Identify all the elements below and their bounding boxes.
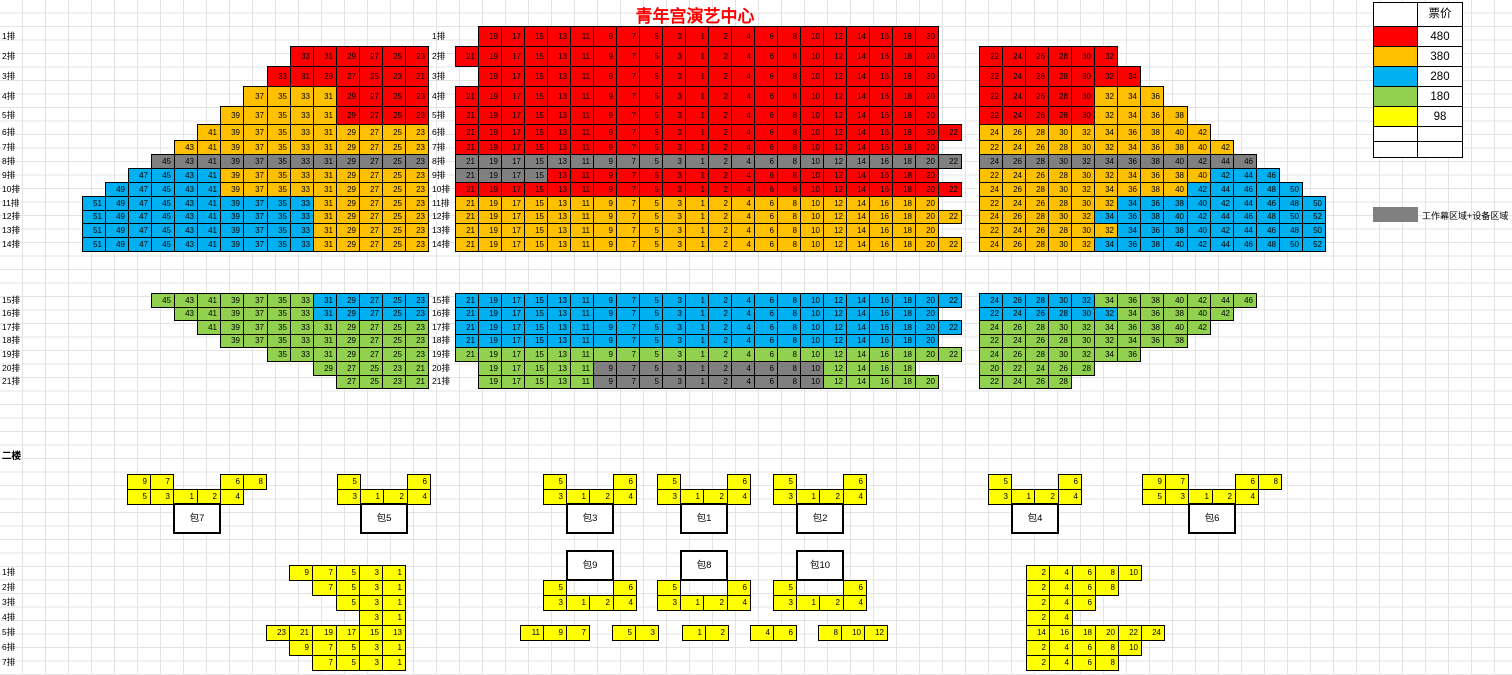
- seat-cell[interactable]: 31: [313, 154, 337, 169]
- seat-cell[interactable]: 18: [1072, 625, 1096, 641]
- seat-cell[interactable]: 3: [662, 196, 686, 211]
- seat-cell[interactable]: 36: [1140, 106, 1164, 125]
- seat-cell[interactable]: 11: [570, 210, 594, 224]
- seat-cell[interactable]: 23: [405, 293, 429, 308]
- seat-cell[interactable]: 17: [501, 307, 525, 321]
- seat-cell[interactable]: 33: [290, 86, 314, 107]
- seat-cell[interactable]: 7: [616, 210, 640, 224]
- seat-cell[interactable]: 19: [478, 124, 502, 141]
- seat-cell[interactable]: 35: [267, 196, 291, 211]
- seat-cell[interactable]: 41: [197, 154, 221, 169]
- seat-cell[interactable]: 3: [662, 375, 686, 389]
- seat-cell[interactable]: 42: [1210, 196, 1234, 211]
- seat-cell[interactable]: 14: [846, 154, 870, 169]
- seat-cell[interactable]: 5: [639, 223, 663, 238]
- seat-cell[interactable]: 48: [1256, 182, 1280, 197]
- seat-cell[interactable]: 27: [359, 320, 383, 335]
- seat-cell[interactable]: 13: [547, 375, 571, 389]
- seat-cell[interactable]: 2: [708, 196, 732, 211]
- seat-cell[interactable]: 47: [128, 223, 152, 238]
- seat-cell[interactable]: 11: [570, 347, 594, 362]
- seat-cell[interactable]: 2: [708, 375, 732, 389]
- seat-cell[interactable]: 18: [892, 140, 916, 155]
- seat-cell[interactable]: 9: [593, 26, 617, 47]
- seat-cell[interactable]: 8: [777, 106, 801, 125]
- seat-cell[interactable]: 38: [1140, 320, 1164, 335]
- seat-cell[interactable]: 17: [501, 293, 525, 308]
- seat-cell[interactable]: 2: [708, 46, 732, 67]
- seat-cell[interactable]: 4: [731, 223, 755, 238]
- seat-cell[interactable]: 21: [455, 106, 479, 125]
- seat-cell[interactable]: 34: [1117, 168, 1141, 183]
- seat-cell[interactable]: 15: [524, 210, 548, 224]
- seat-cell[interactable]: 29: [336, 46, 360, 67]
- seat-cell[interactable]: 32: [1094, 140, 1118, 155]
- seat-cell[interactable]: 3: [988, 489, 1012, 505]
- seat-cell[interactable]: 6: [754, 361, 778, 376]
- seat-cell[interactable]: 9: [593, 168, 617, 183]
- seat-cell[interactable]: 29: [336, 124, 360, 141]
- seat-cell[interactable]: 34: [1117, 106, 1141, 125]
- seat-cell[interactable]: 1: [685, 334, 709, 348]
- seat-cell[interactable]: 5: [639, 86, 663, 107]
- seat-cell[interactable]: 4: [1049, 565, 1073, 581]
- seat-cell[interactable]: 44: [1210, 210, 1234, 224]
- seat-cell[interactable]: 1: [685, 361, 709, 376]
- seat-cell[interactable]: 47: [128, 237, 152, 252]
- seat-cell[interactable]: 47: [128, 196, 152, 211]
- seat-cell[interactable]: 30: [1048, 320, 1072, 335]
- seat-cell[interactable]: 50: [1279, 237, 1303, 252]
- seat-cell[interactable]: 5: [639, 347, 663, 362]
- seat-cell[interactable]: 32: [1094, 223, 1118, 238]
- seat-cell[interactable]: 33: [290, 154, 314, 169]
- seat-cell[interactable]: 29: [336, 223, 360, 238]
- seat-cell[interactable]: 18: [892, 307, 916, 321]
- seat-cell[interactable]: 13: [547, 182, 571, 197]
- seat-cell[interactable]: 21: [455, 196, 479, 211]
- seat-cell[interactable]: 49: [105, 196, 129, 211]
- seat-cell[interactable]: 43: [174, 307, 198, 321]
- seat-cell[interactable]: 24: [1141, 625, 1165, 641]
- seat-cell[interactable]: 9: [593, 320, 617, 335]
- seat-cell[interactable]: 1: [685, 320, 709, 335]
- seat-cell[interactable]: 25: [382, 154, 406, 169]
- seat-cell[interactable]: 6: [754, 375, 778, 389]
- seat-cell[interactable]: 32: [1071, 154, 1095, 169]
- seat-cell[interactable]: 3: [662, 361, 686, 376]
- seat-cell[interactable]: 2: [708, 106, 732, 125]
- seat-cell[interactable]: 20: [1095, 625, 1119, 641]
- seat-cell[interactable]: 14: [1026, 625, 1050, 641]
- seat-cell[interactable]: 3: [150, 489, 174, 505]
- seat-cell[interactable]: 17: [501, 140, 525, 155]
- seat-cell[interactable]: 31: [313, 182, 337, 197]
- seat-cell[interactable]: 38: [1163, 140, 1188, 155]
- seat-cell[interactable]: 24: [1002, 168, 1026, 183]
- seat-cell[interactable]: 3: [657, 489, 681, 505]
- seat-cell[interactable]: 14: [846, 347, 870, 362]
- seat-cell[interactable]: 14: [846, 168, 870, 183]
- seat-cell[interactable]: 39: [220, 106, 244, 125]
- seat-cell[interactable]: 8: [777, 182, 801, 197]
- seat-cell[interactable]: 7: [616, 307, 640, 321]
- seat-cell[interactable]: 22: [938, 210, 962, 224]
- seat-cell[interactable]: 16: [869, 66, 893, 87]
- seat-cell[interactable]: 11: [570, 140, 594, 155]
- seat-cell[interactable]: 22: [979, 375, 1003, 389]
- seat-cell[interactable]: 1: [685, 307, 709, 321]
- seat-cell[interactable]: 41: [197, 307, 221, 321]
- seat-cell[interactable]: 22: [979, 196, 1003, 211]
- seat-cell[interactable]: 25: [382, 124, 406, 141]
- seat-cell[interactable]: 2: [708, 223, 732, 238]
- seat-cell[interactable]: 37: [243, 182, 268, 197]
- seat-cell[interactable]: 13: [547, 320, 571, 335]
- seat-cell[interactable]: 43: [174, 237, 198, 252]
- seat-cell[interactable]: 1: [685, 375, 709, 389]
- seat-cell[interactable]: 3: [773, 489, 797, 505]
- seat-cell[interactable]: 16: [869, 106, 893, 125]
- seat-cell[interactable]: 3: [1165, 489, 1189, 505]
- seat-cell[interactable]: 20: [915, 347, 939, 362]
- seat-cell[interactable]: 26: [1002, 154, 1026, 169]
- seat-cell[interactable]: 14: [846, 361, 870, 376]
- seat-cell[interactable]: 6: [1072, 565, 1096, 581]
- seat-cell[interactable]: 30: [1048, 237, 1072, 252]
- seat-cell[interactable]: 10: [800, 210, 824, 224]
- seat-cell[interactable]: 21: [455, 168, 479, 183]
- seat-cell[interactable]: 20: [915, 293, 939, 308]
- seat-cell[interactable]: 48: [1279, 196, 1303, 211]
- seat-cell[interactable]: 29: [336, 196, 360, 211]
- seat-cell[interactable]: 17: [501, 66, 525, 87]
- seat-cell[interactable]: 8: [777, 320, 801, 335]
- seat-cell[interactable]: 30: [1071, 46, 1095, 67]
- seat-cell[interactable]: 24: [979, 237, 1003, 252]
- seat-cell[interactable]: 15: [524, 223, 548, 238]
- seat-cell[interactable]: 8: [777, 196, 801, 211]
- seat-cell[interactable]: 20: [915, 86, 939, 107]
- seat-cell[interactable]: 3: [662, 237, 686, 252]
- seat-cell[interactable]: 25: [382, 182, 406, 197]
- seat-cell[interactable]: 28: [1025, 320, 1049, 335]
- seat-cell[interactable]: 29: [336, 307, 360, 321]
- seat-cell[interactable]: 8: [1258, 474, 1282, 490]
- seat-cell[interactable]: 14: [846, 124, 870, 141]
- seat-cell[interactable]: 8: [777, 347, 801, 362]
- seat-cell[interactable]: 21: [405, 66, 429, 87]
- seat-cell[interactable]: 45: [151, 196, 175, 211]
- seat-cell[interactable]: 4: [731, 140, 755, 155]
- seat-cell[interactable]: 14: [846, 196, 870, 211]
- seat-cell[interactable]: 44: [1233, 223, 1257, 238]
- seat-cell[interactable]: 36: [1117, 124, 1141, 141]
- seat-cell[interactable]: 42: [1187, 182, 1211, 197]
- seat-cell[interactable]: 5: [639, 334, 663, 348]
- seat-cell[interactable]: 25: [382, 347, 406, 362]
- seat-cell[interactable]: 42: [1187, 124, 1211, 141]
- seat-cell[interactable]: 7: [312, 580, 337, 596]
- seat-cell[interactable]: 8: [1095, 655, 1119, 671]
- seat-cell[interactable]: 16: [869, 124, 893, 141]
- seat-cell[interactable]: 25: [382, 86, 406, 107]
- seat-cell[interactable]: 1: [685, 223, 709, 238]
- seat-cell[interactable]: 4: [731, 196, 755, 211]
- seat-cell[interactable]: 13: [547, 334, 571, 348]
- seat-cell[interactable]: 17: [501, 334, 525, 348]
- seat-cell[interactable]: 12: [823, 375, 847, 389]
- seat-cell[interactable]: 11: [570, 196, 594, 211]
- seat-cell[interactable]: 9: [593, 293, 617, 308]
- seat-cell[interactable]: 21: [455, 124, 479, 141]
- seat-cell[interactable]: 23: [405, 334, 429, 348]
- seat-cell[interactable]: 28: [1048, 46, 1072, 67]
- seat-cell[interactable]: 47: [128, 182, 152, 197]
- seat-cell[interactable]: 28: [1025, 182, 1049, 197]
- seat-cell[interactable]: 2: [1026, 580, 1050, 596]
- seat-cell[interactable]: 30: [1071, 168, 1095, 183]
- seat-cell[interactable]: 4: [731, 124, 755, 141]
- seat-cell[interactable]: 2: [589, 595, 614, 611]
- seat-cell[interactable]: 16: [869, 196, 893, 211]
- seat-cell[interactable]: 17: [501, 375, 525, 389]
- seat-cell[interactable]: 7: [616, 237, 640, 252]
- seat-cell[interactable]: 29: [336, 293, 360, 308]
- seat-cell[interactable]: 9: [593, 223, 617, 238]
- seat-cell[interactable]: 19: [478, 223, 502, 238]
- seat-cell[interactable]: 1: [685, 26, 709, 47]
- seat-cell[interactable]: 9: [593, 86, 617, 107]
- seat-cell[interactable]: 7: [616, 223, 640, 238]
- seat-cell[interactable]: 2: [1026, 595, 1050, 611]
- seat-cell[interactable]: 27: [336, 361, 360, 376]
- seat-cell[interactable]: 12: [823, 223, 847, 238]
- seat-cell[interactable]: 22: [1002, 361, 1026, 376]
- seat-cell[interactable]: 3: [662, 347, 686, 362]
- seat-cell[interactable]: 6: [1235, 474, 1259, 490]
- seat-cell[interactable]: 14: [846, 140, 870, 155]
- seat-cell[interactable]: 31: [313, 307, 337, 321]
- seat-cell[interactable]: 35: [267, 210, 291, 224]
- seat-cell[interactable]: 5: [612, 625, 636, 641]
- seat-cell[interactable]: 17: [336, 625, 360, 641]
- seat-cell[interactable]: 19: [478, 154, 502, 169]
- seat-cell[interactable]: 3: [635, 625, 659, 641]
- seat-cell[interactable]: 8: [243, 474, 267, 490]
- seat-cell[interactable]: 3: [359, 610, 383, 626]
- seat-cell[interactable]: 28: [1048, 140, 1072, 155]
- seat-cell[interactable]: 25: [382, 293, 406, 308]
- seat-cell[interactable]: 18: [892, 66, 916, 87]
- seat-cell[interactable]: 51: [82, 237, 106, 252]
- seat-cell[interactable]: 34: [1117, 196, 1141, 211]
- seat-cell[interactable]: 4: [731, 361, 755, 376]
- seat-cell[interactable]: 1: [685, 237, 709, 252]
- seat-cell[interactable]: 46: [1233, 182, 1257, 197]
- seat-cell[interactable]: 11: [570, 106, 594, 125]
- seat-cell[interactable]: 30: [1071, 106, 1095, 125]
- seat-cell[interactable]: 4: [1235, 489, 1259, 505]
- seat-cell[interactable]: 3: [337, 489, 361, 505]
- seat-cell[interactable]: 12: [823, 26, 847, 47]
- seat-cell[interactable]: 42: [1210, 307, 1234, 321]
- seat-cell[interactable]: 18: [892, 168, 916, 183]
- seat-cell[interactable]: 4: [731, 86, 755, 107]
- seat-cell[interactable]: 23: [405, 86, 429, 107]
- seat-cell[interactable]: 15: [359, 625, 383, 641]
- seat-cell[interactable]: 23: [266, 625, 290, 641]
- seat-cell[interactable]: 10: [800, 361, 824, 376]
- seat-cell[interactable]: 23: [405, 320, 429, 335]
- seat-cell[interactable]: 25: [359, 66, 383, 87]
- seat-cell[interactable]: 5: [336, 580, 360, 596]
- seat-cell[interactable]: 6: [1072, 655, 1096, 671]
- seat-cell[interactable]: 9: [289, 565, 313, 581]
- seat-cell[interactable]: 22: [1118, 625, 1142, 641]
- seat-cell[interactable]: 31: [313, 334, 337, 348]
- seat-cell[interactable]: 23: [382, 375, 406, 389]
- seat-cell[interactable]: 40: [1163, 320, 1188, 335]
- seat-cell[interactable]: 8: [777, 237, 801, 252]
- seat-cell[interactable]: 3: [662, 223, 686, 238]
- seat-cell[interactable]: 19: [478, 334, 502, 348]
- seat-cell[interactable]: 36: [1140, 223, 1164, 238]
- seat-cell[interactable]: 7: [616, 26, 640, 47]
- seat-cell[interactable]: 33: [290, 320, 314, 335]
- seat-cell[interactable]: 15: [524, 46, 548, 67]
- seat-cell[interactable]: 6: [407, 474, 431, 490]
- seat-cell[interactable]: 3: [359, 595, 383, 611]
- seat-cell[interactable]: 31: [313, 106, 337, 125]
- seat-cell[interactable]: 7: [616, 182, 640, 197]
- seat-cell[interactable]: 26: [1002, 293, 1026, 308]
- seat-cell[interactable]: 27: [359, 124, 383, 141]
- seat-cell[interactable]: 24: [1002, 46, 1026, 67]
- seat-cell[interactable]: 27: [359, 237, 383, 252]
- seat-cell[interactable]: 40: [1187, 140, 1211, 155]
- seat-cell[interactable]: 36: [1140, 168, 1164, 183]
- seat-cell[interactable]: 32: [1094, 66, 1118, 87]
- seat-cell[interactable]: 8: [777, 46, 801, 67]
- seat-cell[interactable]: 42: [1187, 293, 1211, 308]
- seat-cell[interactable]: 18: [892, 124, 916, 141]
- seat-cell[interactable]: 7: [616, 86, 640, 107]
- seat-cell[interactable]: 27: [359, 182, 383, 197]
- seat-cell[interactable]: 36: [1140, 86, 1164, 107]
- seat-cell[interactable]: 14: [846, 66, 870, 87]
- seat-cell[interactable]: 5: [1142, 489, 1166, 505]
- seat-cell[interactable]: 4: [750, 625, 774, 641]
- seat-cell[interactable]: 39: [220, 293, 244, 308]
- seat-cell[interactable]: 6: [1072, 640, 1096, 656]
- seat-cell[interactable]: 27: [359, 46, 383, 67]
- seat-cell[interactable]: 19: [478, 106, 502, 125]
- seat-cell[interactable]: 13: [547, 124, 571, 141]
- seat-cell[interactable]: 7: [566, 625, 590, 641]
- seat-cell[interactable]: 4: [613, 489, 637, 505]
- seat-cell[interactable]: 24: [1025, 361, 1049, 376]
- seat-cell[interactable]: 29: [336, 347, 360, 362]
- seat-cell[interactable]: 9: [593, 154, 617, 169]
- seat-cell[interactable]: 25: [382, 307, 406, 321]
- seat-cell[interactable]: 7: [616, 334, 640, 348]
- seat-cell[interactable]: 1: [680, 595, 704, 611]
- seat-cell[interactable]: 24: [1002, 334, 1026, 348]
- seat-cell[interactable]: 11: [570, 182, 594, 197]
- seat-cell[interactable]: 8: [777, 334, 801, 348]
- seat-cell[interactable]: 19: [312, 625, 337, 641]
- seat-cell[interactable]: 49: [105, 223, 129, 238]
- seat-cell[interactable]: 28: [1025, 124, 1049, 141]
- seat-cell[interactable]: 41: [197, 140, 221, 155]
- seat-cell[interactable]: 22: [979, 168, 1003, 183]
- seat-cell[interactable]: 18: [892, 106, 916, 125]
- seat-cell[interactable]: 5: [127, 489, 151, 505]
- seat-cell[interactable]: 13: [547, 210, 571, 224]
- seat-cell[interactable]: 28: [1048, 66, 1072, 87]
- seat-cell[interactable]: 5: [639, 154, 663, 169]
- seat-cell[interactable]: 18: [892, 210, 916, 224]
- seat-cell[interactable]: 52: [1302, 237, 1326, 252]
- seat-cell[interactable]: 7: [616, 293, 640, 308]
- seat-cell[interactable]: 21: [405, 375, 429, 389]
- seat-cell[interactable]: 15: [524, 182, 548, 197]
- seat-cell[interactable]: 24: [979, 124, 1003, 141]
- seat-cell[interactable]: 13: [547, 46, 571, 67]
- seat-cell[interactable]: 6: [754, 46, 778, 67]
- seat-cell[interactable]: 44: [1210, 182, 1234, 197]
- seat-cell[interactable]: 39: [220, 210, 244, 224]
- seat-cell[interactable]: 32: [1094, 106, 1118, 125]
- seat-cell[interactable]: 23: [405, 168, 429, 183]
- seat-cell[interactable]: 45: [151, 154, 175, 169]
- seat-cell[interactable]: 6: [613, 474, 637, 490]
- seat-cell[interactable]: 29: [313, 66, 337, 87]
- seat-cell[interactable]: 4: [731, 46, 755, 67]
- seat-cell[interactable]: 16: [869, 293, 893, 308]
- seat-cell[interactable]: 19: [478, 196, 502, 211]
- seat-cell[interactable]: 22: [938, 293, 962, 308]
- seat-cell[interactable]: 5: [639, 124, 663, 141]
- seat-cell[interactable]: 27: [359, 196, 383, 211]
- seat-cell[interactable]: 27: [359, 307, 383, 321]
- seat-cell[interactable]: 25: [382, 237, 406, 252]
- seat-cell[interactable]: 20: [915, 307, 939, 321]
- seat-cell[interactable]: 27: [359, 86, 383, 107]
- seat-cell[interactable]: 5: [336, 595, 360, 611]
- seat-cell[interactable]: 1: [682, 625, 706, 641]
- seat-cell[interactable]: 5: [639, 293, 663, 308]
- seat-cell[interactable]: 23: [382, 361, 406, 376]
- seat-cell[interactable]: 1: [685, 182, 709, 197]
- seat-cell[interactable]: 10: [800, 334, 824, 348]
- seat-cell[interactable]: 24: [979, 347, 1003, 362]
- seat-cell[interactable]: 18: [892, 375, 916, 389]
- seat-cell[interactable]: 43: [174, 140, 198, 155]
- seat-cell[interactable]: 36: [1117, 182, 1141, 197]
- seat-cell[interactable]: 3: [359, 640, 383, 656]
- seat-cell[interactable]: 34: [1094, 320, 1118, 335]
- seat-cell[interactable]: 42: [1210, 168, 1234, 183]
- seat-cell[interactable]: 26: [1025, 196, 1049, 211]
- seat-cell[interactable]: 27: [359, 154, 383, 169]
- seat-cell[interactable]: 14: [846, 106, 870, 125]
- seat-cell[interactable]: 36: [1140, 140, 1164, 155]
- seat-cell[interactable]: 19: [478, 86, 502, 107]
- seat-cell[interactable]: 33: [290, 46, 314, 67]
- seat-cell[interactable]: 19: [478, 210, 502, 224]
